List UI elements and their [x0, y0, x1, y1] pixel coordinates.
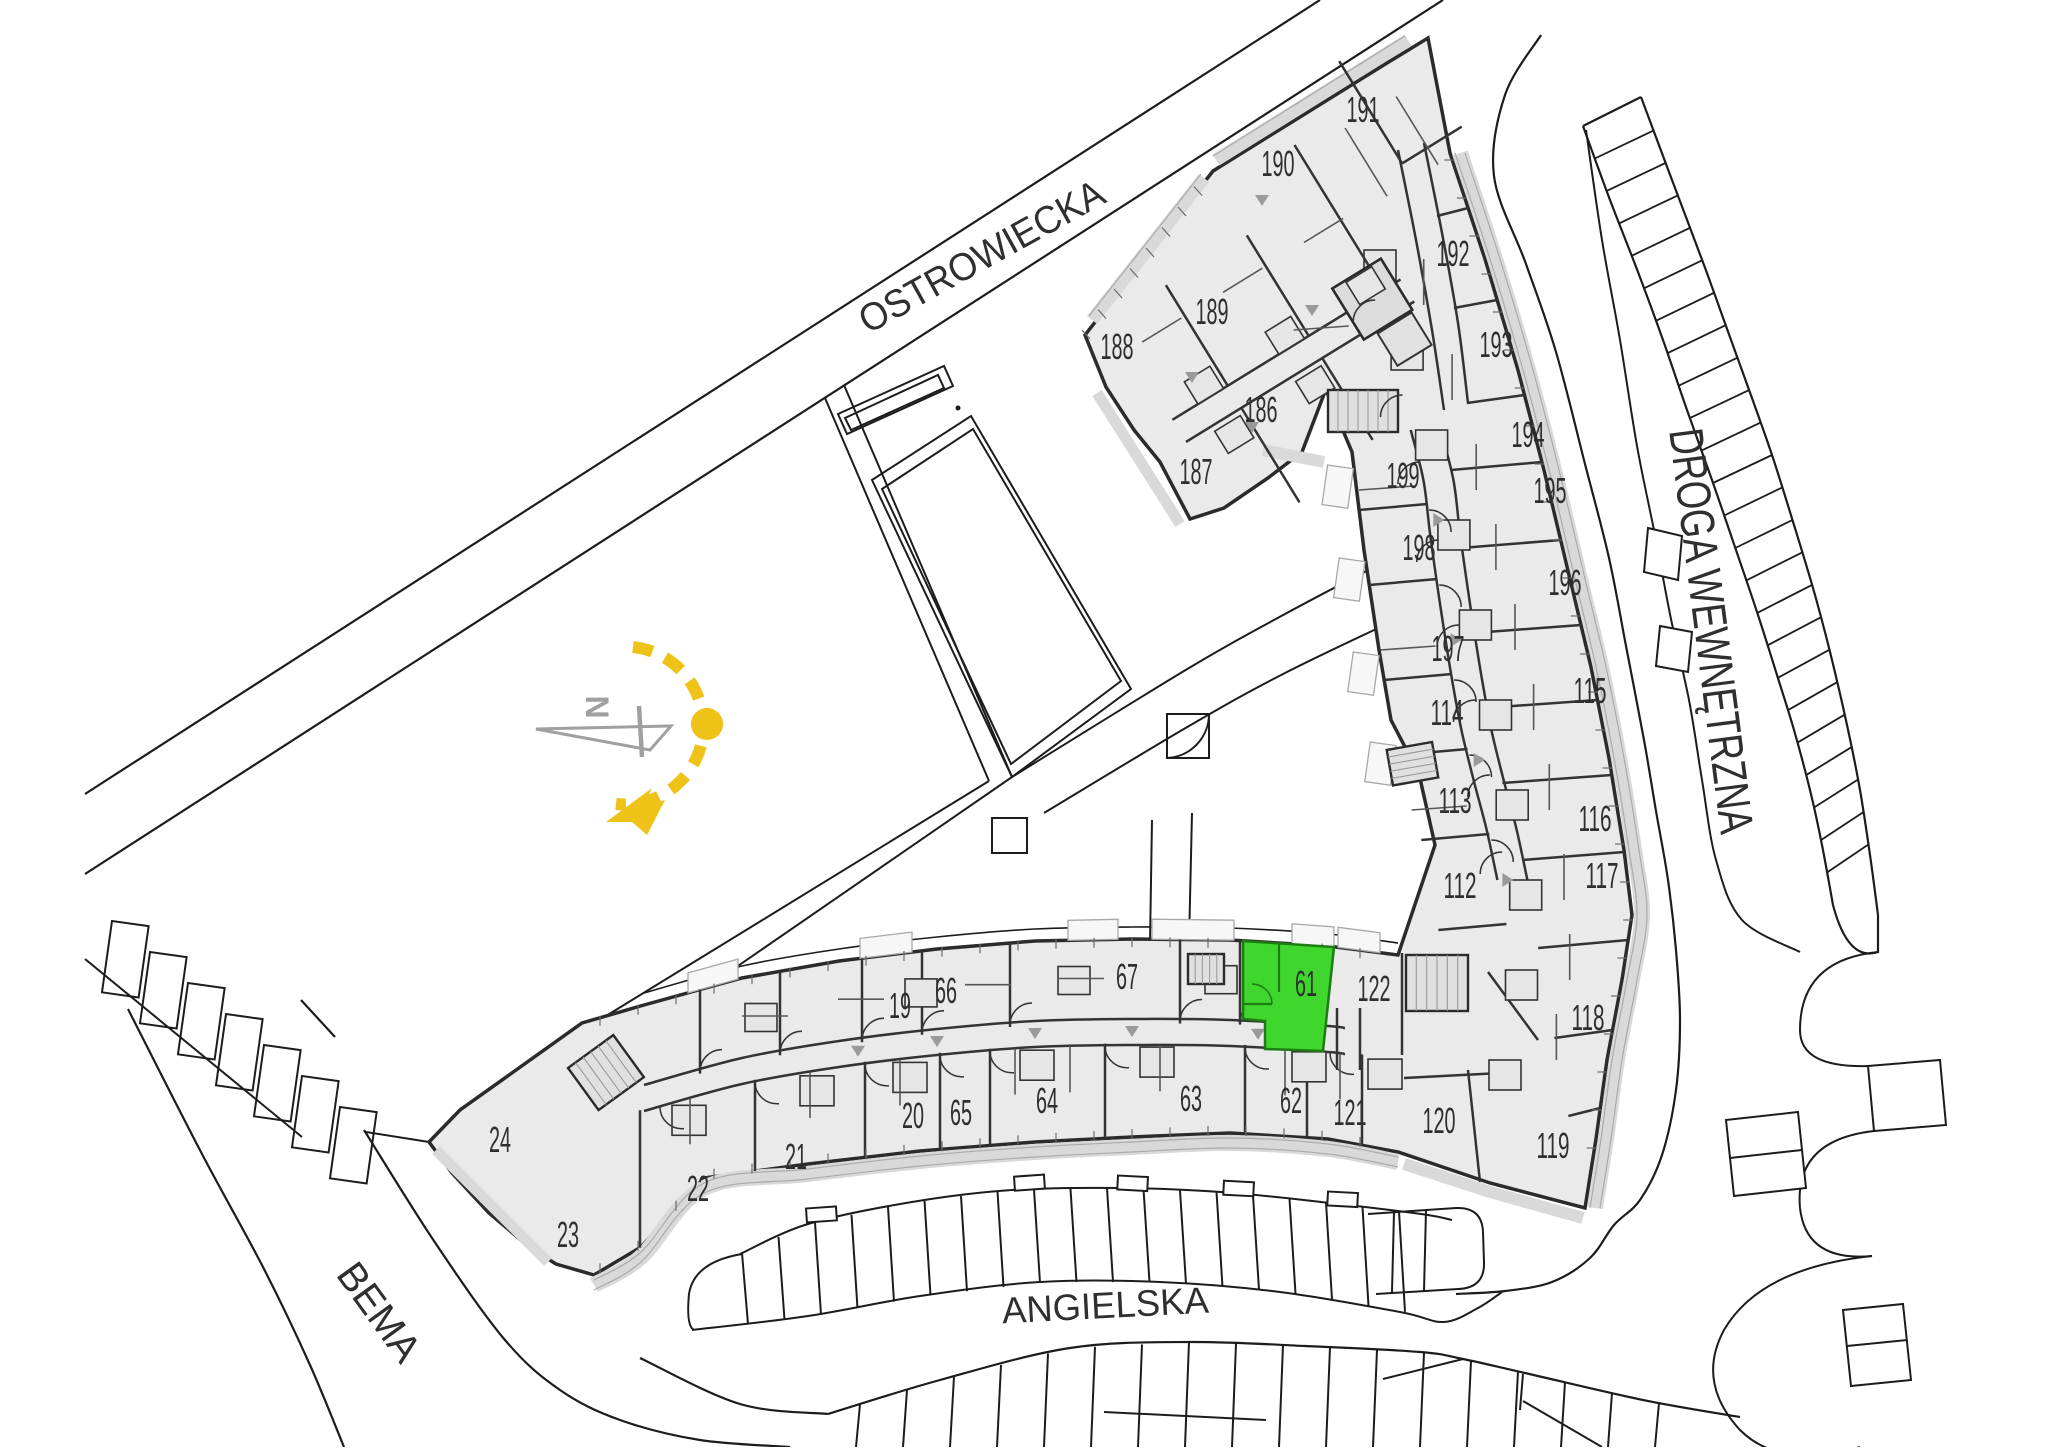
svg-text:196: 196 [1549, 562, 1582, 603]
svg-text:61: 61 [1295, 963, 1317, 1004]
svg-text:118: 118 [1572, 997, 1605, 1038]
svg-text:115: 115 [1574, 670, 1607, 711]
svg-text:192: 192 [1437, 233, 1470, 274]
svg-text:24: 24 [489, 1119, 511, 1160]
svg-text:198: 198 [1403, 527, 1436, 568]
svg-text:62: 62 [1280, 1080, 1302, 1121]
svg-text:188: 188 [1101, 326, 1134, 367]
svg-text:186: 186 [1245, 389, 1278, 430]
svg-text:22: 22 [687, 1168, 709, 1209]
svg-text:66: 66 [935, 970, 957, 1011]
svg-text:112: 112 [1444, 865, 1477, 906]
svg-text:116: 116 [1579, 798, 1612, 839]
svg-text:114: 114 [1431, 692, 1464, 733]
svg-text:19: 19 [889, 985, 911, 1026]
svg-text:191: 191 [1347, 89, 1380, 130]
svg-text:119: 119 [1537, 1125, 1570, 1166]
svg-text:63: 63 [1180, 1078, 1202, 1119]
svg-text:23: 23 [557, 1214, 579, 1255]
svg-text:122: 122 [1358, 968, 1391, 1009]
svg-text:195: 195 [1534, 470, 1567, 511]
svg-text:113: 113 [1439, 780, 1472, 821]
svg-text:117: 117 [1586, 855, 1619, 896]
svg-text:197: 197 [1432, 628, 1465, 669]
svg-text:64: 64 [1036, 1080, 1058, 1121]
svg-text:65: 65 [950, 1092, 972, 1133]
svg-text:67: 67 [1116, 956, 1138, 997]
svg-text:21: 21 [785, 1136, 807, 1177]
svg-text:190: 190 [1262, 143, 1295, 184]
svg-text:189: 189 [1196, 291, 1229, 332]
svg-text:121: 121 [1334, 1092, 1367, 1133]
svg-text:194: 194 [1512, 414, 1545, 455]
svg-text:120: 120 [1423, 1100, 1456, 1141]
svg-text:N: N [579, 695, 615, 718]
svg-text:199: 199 [1387, 455, 1420, 496]
svg-text:20: 20 [902, 1095, 924, 1136]
svg-text:187: 187 [1180, 451, 1213, 492]
svg-text:193: 193 [1480, 324, 1513, 365]
